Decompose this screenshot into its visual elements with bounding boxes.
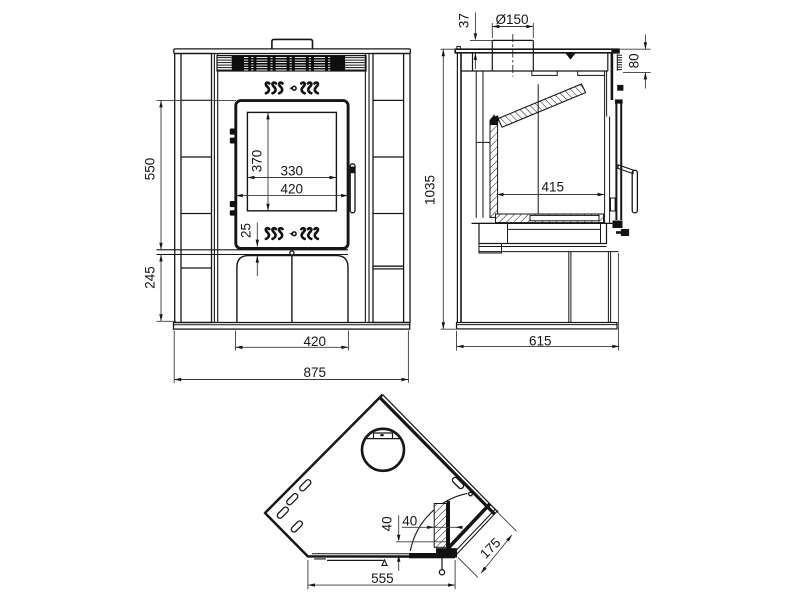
svg-text:245: 245 xyxy=(143,266,158,289)
svg-text:550: 550 xyxy=(143,158,158,181)
svg-text:Ø150: Ø150 xyxy=(495,12,528,27)
svg-text:555: 555 xyxy=(371,571,394,586)
svg-text:37: 37 xyxy=(456,13,471,28)
svg-text:615: 615 xyxy=(529,334,552,349)
svg-text:415: 415 xyxy=(542,180,565,195)
svg-text:25: 25 xyxy=(239,223,254,238)
svg-text:1035: 1035 xyxy=(422,175,437,205)
svg-text:420: 420 xyxy=(281,182,304,197)
svg-text:420: 420 xyxy=(304,334,327,349)
svg-text:330: 330 xyxy=(281,164,304,179)
svg-text:370: 370 xyxy=(250,150,265,173)
svg-text:875: 875 xyxy=(304,365,327,380)
svg-text:80: 80 xyxy=(627,53,642,68)
svg-text:40: 40 xyxy=(379,516,394,531)
svg-text:40: 40 xyxy=(402,513,417,528)
